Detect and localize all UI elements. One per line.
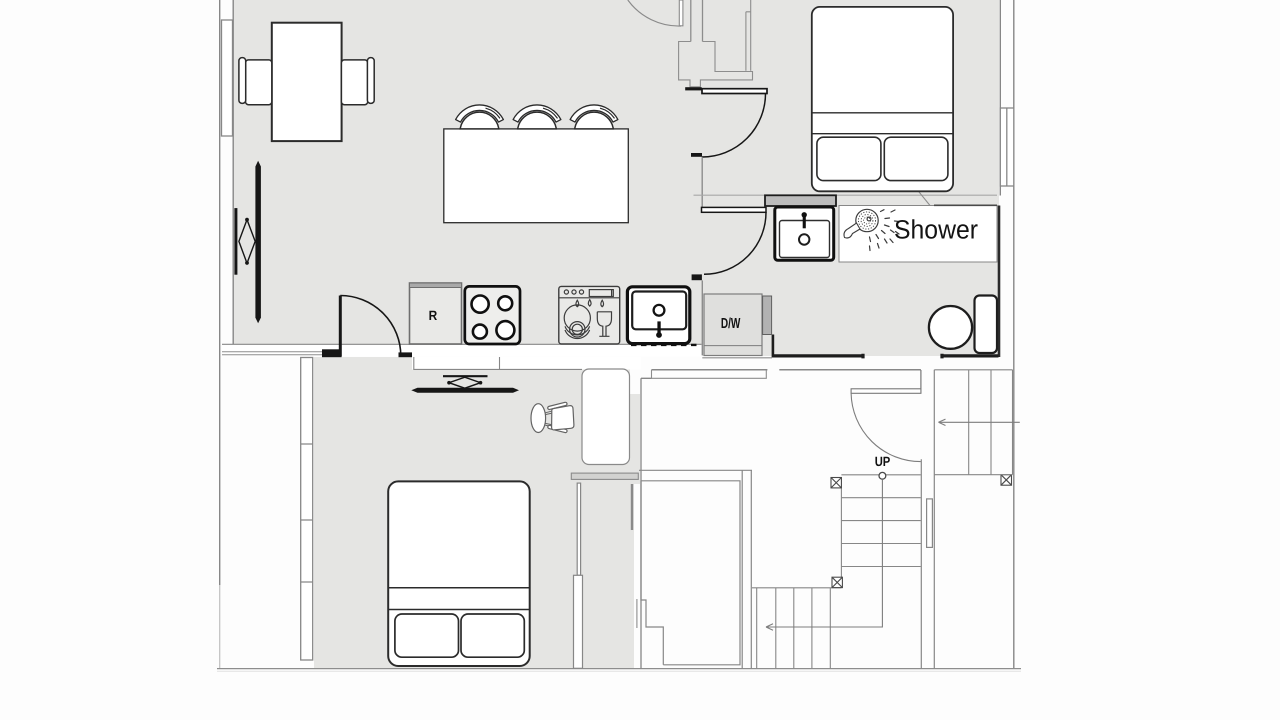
svg-text:UP: UP (875, 454, 891, 469)
svg-text:Shower: Shower (894, 214, 978, 244)
svg-text:R: R (429, 308, 438, 323)
svg-text:D/W: D/W (721, 316, 741, 332)
